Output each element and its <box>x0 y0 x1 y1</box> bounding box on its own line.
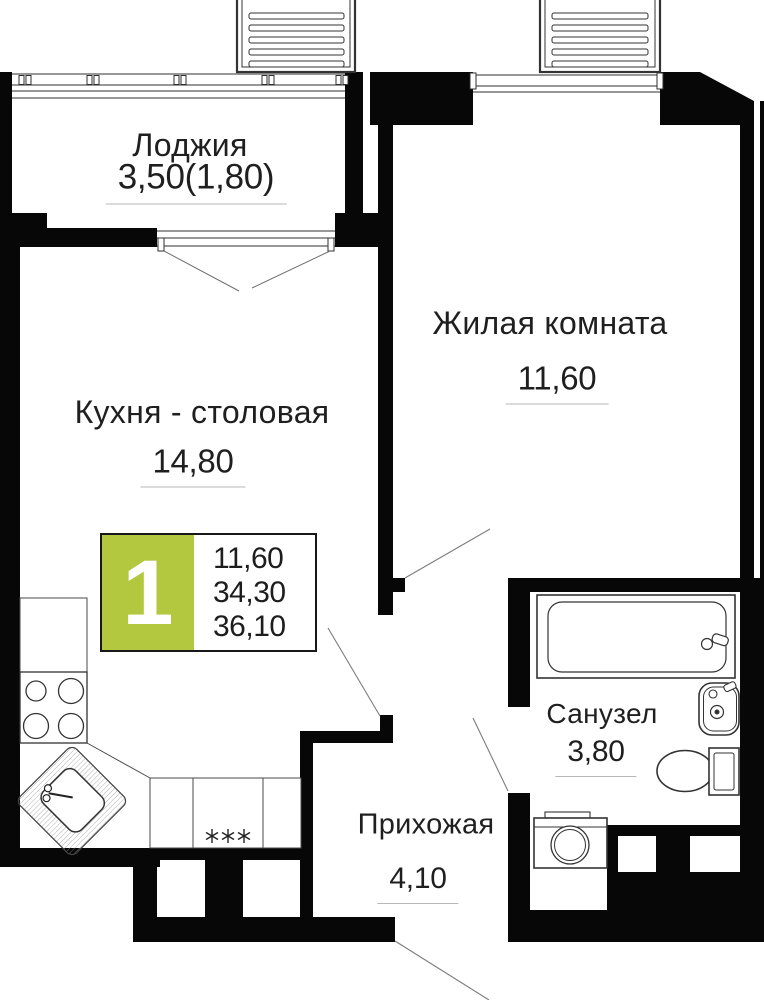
bathroom-door-line <box>473 718 508 791</box>
room-area-hallway: 4,10 <box>377 864 458 904</box>
washing-machine-icon <box>534 812 607 868</box>
unit-area-without-loggia: 34,30 <box>213 576 315 610</box>
room-name-kitchen: Кухня - столовая <box>75 396 330 428</box>
ventilation-grille-icon <box>540 0 660 72</box>
floor-plan: Лоджия 3,50(1,80) Кухня - столовая 14,80… <box>0 0 764 1000</box>
unit-number: 1 <box>102 535 194 650</box>
room-area-living-room: 11,60 <box>506 362 609 405</box>
room-name-hallway: Прихожая <box>358 811 495 840</box>
kitchen-corner-sink-icon <box>16 745 129 858</box>
ventilation-grille-icon <box>237 0 355 72</box>
hob-asterisks-icon <box>206 829 250 843</box>
toilet-icon <box>657 748 739 795</box>
living-room-door-line <box>405 529 490 578</box>
room-area-kitchen: 14,80 <box>140 445 245 488</box>
balcony-door-icon <box>157 231 335 291</box>
loggia-glazing-window-icon <box>12 74 348 98</box>
room-area-loggia: 3,50(1,80) <box>106 160 287 205</box>
wash-basin-icon <box>699 681 739 735</box>
floor-plan-drawing <box>0 0 764 1000</box>
unit-total-area: 36,10 <box>213 610 315 644</box>
unit-info-badge: 1 11,60 34,30 36,10 <box>100 533 317 652</box>
room-name-bathroom: Санузел <box>546 700 657 728</box>
living-room-window-icon <box>470 73 663 92</box>
room-name-living-room: Жилая комната <box>432 307 667 339</box>
room-name-loggia: Лоджия <box>132 129 247 161</box>
stove-icon <box>20 672 87 743</box>
unit-living-area: 11,60 <box>213 542 315 576</box>
entrance-door-line <box>395 941 489 1000</box>
unit-areas: 11,60 34,30 36,10 <box>194 535 315 650</box>
kitchen-door-line <box>328 628 380 716</box>
room-area-bathroom: 3,80 <box>555 737 636 777</box>
bathtub-icon <box>537 595 735 678</box>
